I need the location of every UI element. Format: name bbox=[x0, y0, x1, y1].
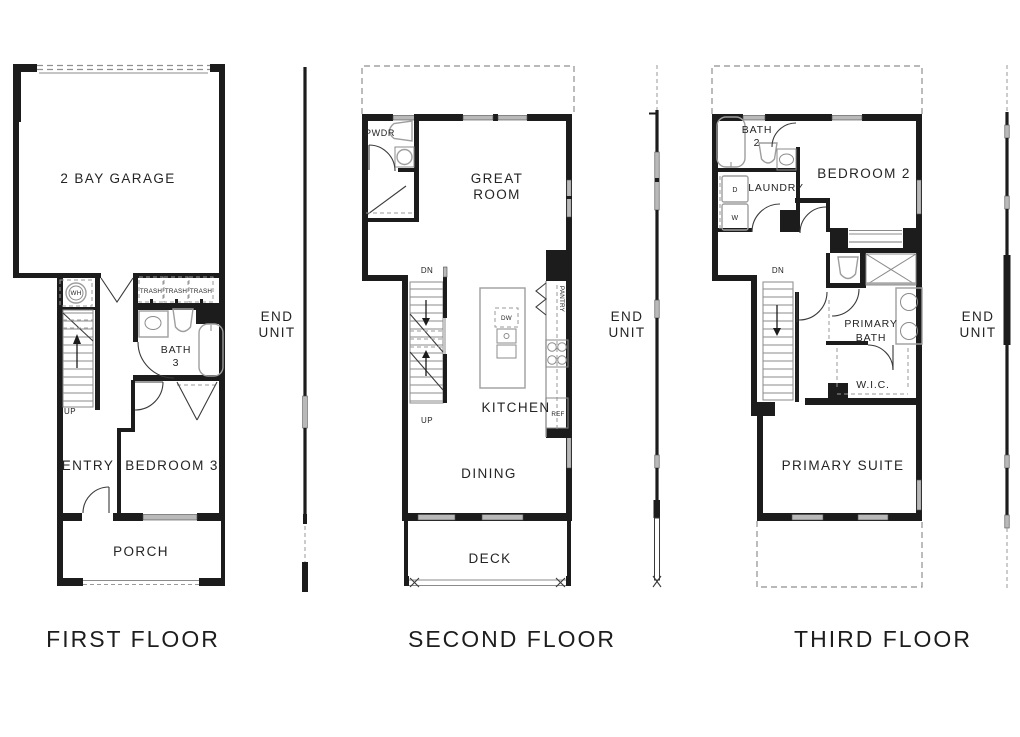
bath2-toilet-icon bbox=[759, 143, 777, 163]
ref-label: REF bbox=[551, 411, 564, 418]
coat-closet bbox=[366, 186, 412, 214]
bedroom3-door bbox=[135, 382, 163, 410]
great-room-label-2: ROOM bbox=[473, 187, 521, 202]
bedroom3-label: BEDROOM 3 bbox=[125, 458, 219, 473]
up-label-second: UP bbox=[421, 416, 433, 425]
wic-label: W.I.C. bbox=[856, 379, 889, 391]
primary-bath: PRIMARY BATH bbox=[829, 254, 922, 344]
pantry-label: PANTRY bbox=[558, 286, 565, 313]
deck-label: DECK bbox=[468, 551, 511, 566]
first-floor-plan: WH TRASH TRASH TRASH UP bbox=[13, 64, 225, 652]
vanity-sink-icon-1 bbox=[901, 294, 918, 311]
stairs-second: DN UP bbox=[410, 266, 447, 425]
bath3-vanity bbox=[139, 311, 168, 337]
kitchen-island: DW bbox=[480, 288, 525, 388]
pwdr-sink-icon bbox=[397, 150, 412, 165]
front-door bbox=[83, 487, 109, 513]
second-floor-plan: PWDR DN UP bbox=[362, 66, 616, 652]
bath2: BATH 2 bbox=[717, 117, 796, 170]
dw-label: DW bbox=[501, 315, 512, 322]
pwdr-door bbox=[369, 145, 395, 171]
dining-label: DINING bbox=[461, 466, 517, 481]
second-floor-title: SECOND FLOOR bbox=[408, 626, 616, 652]
vanity-sink-icon-2 bbox=[901, 323, 918, 340]
end-unit-label-1b: UNIT bbox=[258, 325, 295, 340]
bath2-label-1: BATH bbox=[742, 124, 772, 136]
trash-label-3: TRASH bbox=[190, 288, 213, 295]
entry-window bbox=[143, 515, 197, 521]
laundry-door bbox=[752, 204, 780, 232]
end-unit-label-3a: END bbox=[962, 309, 995, 324]
stairs-up-first: UP bbox=[63, 310, 93, 416]
end-unit-wall-3: END UNIT bbox=[959, 65, 1010, 588]
washer-label: W bbox=[732, 215, 739, 222]
garage-entry-door bbox=[101, 278, 133, 302]
pantry-wall-block bbox=[546, 250, 572, 281]
third-floor-plan: BATH 2 D W LAUNDRY DN bbox=[712, 66, 972, 652]
primary-suite-label: PRIMARY SUITE bbox=[782, 458, 905, 473]
end-unit-wall-2: END UNIT bbox=[608, 65, 661, 587]
floorplan-sheet: WH TRASH TRASH TRASH UP bbox=[0, 0, 1020, 737]
first-floor-walls bbox=[13, 64, 225, 586]
kitchen-label: KITCHEN bbox=[481, 400, 550, 415]
laundry: D W LAUNDRY bbox=[720, 176, 826, 233]
primary-bath-door bbox=[832, 289, 859, 316]
pwdr-label: PWDR bbox=[365, 128, 395, 138]
laundry-label: LAUNDRY bbox=[748, 182, 804, 194]
second-floor-walls bbox=[362, 114, 572, 521]
up-label-first: UP bbox=[64, 407, 76, 416]
bedroom3-closet bbox=[135, 382, 217, 420]
dn-label-second: DN bbox=[421, 266, 433, 275]
end-unit-label-3b: UNIT bbox=[959, 325, 996, 340]
bath3-sink-icon bbox=[145, 317, 161, 330]
bath2-label-2: 2 bbox=[754, 137, 761, 149]
primary-bath-label-2: BATH bbox=[856, 332, 886, 344]
end-unit-label-2a: END bbox=[611, 309, 644, 324]
island-sink-icon bbox=[497, 329, 516, 343]
bath3-label-1: BATH bbox=[161, 344, 191, 356]
roof-below-outline bbox=[757, 521, 922, 587]
primary-toilet-icon bbox=[838, 257, 858, 279]
bedroom2-label: BEDROOM 2 bbox=[817, 166, 911, 181]
garage-door bbox=[37, 66, 210, 74]
end-unit-label-1a: END bbox=[261, 309, 294, 324]
floor-plan-canvas: WH TRASH TRASH TRASH UP bbox=[0, 0, 1020, 737]
bath3-toilet-icon bbox=[173, 309, 193, 332]
first-floor-title: FIRST FLOOR bbox=[46, 626, 220, 652]
wh-label: WH bbox=[71, 290, 82, 297]
trash-label-2: TRASH bbox=[165, 288, 188, 295]
pantry-bifold-door bbox=[536, 283, 546, 315]
end-unit-wall-1: END UNIT bbox=[258, 67, 308, 592]
powder-room: PWDR bbox=[365, 121, 414, 171]
great-room-label-1: GREAT bbox=[471, 171, 524, 186]
third-floor-title: THIRD FLOOR bbox=[794, 626, 972, 652]
porch-label: PORCH bbox=[113, 544, 169, 559]
wic-door bbox=[868, 345, 893, 370]
primary-bath-label-1: PRIMARY bbox=[844, 318, 897, 330]
dryer-label: D bbox=[732, 187, 737, 194]
water-heater: WH bbox=[60, 280, 92, 306]
trash-label-1: TRASH bbox=[140, 288, 163, 295]
entry-label: ENTRY bbox=[62, 458, 115, 473]
dn-label-third: DN bbox=[772, 266, 784, 275]
end-unit-label-2b: UNIT bbox=[608, 325, 645, 340]
bath3-label-2: 3 bbox=[173, 357, 180, 369]
hall-door bbox=[799, 292, 827, 320]
trash-bins: TRASH TRASH TRASH bbox=[139, 277, 213, 305]
roof-outline-second bbox=[362, 66, 574, 114]
bedroom2-door bbox=[800, 207, 826, 233]
roof-outline-third bbox=[712, 66, 922, 114]
bath2-sink-icon bbox=[780, 154, 794, 165]
garage-label: 2 BAY GARAGE bbox=[60, 171, 175, 186]
